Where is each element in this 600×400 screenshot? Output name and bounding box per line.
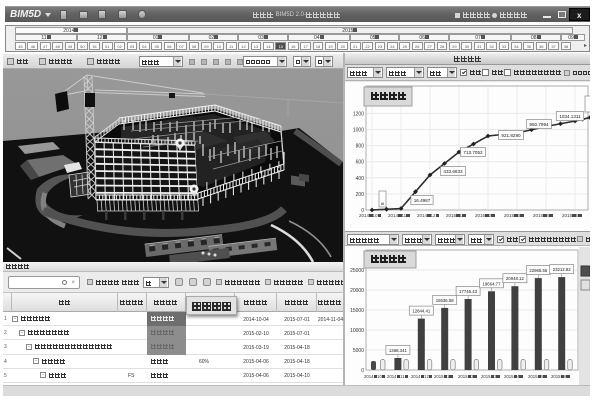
svg-text:15536.58: 15536.58 <box>436 298 455 303</box>
svg-text:950.7994: 950.7994 <box>529 122 549 127</box>
svg-text:1000: 1000 <box>353 128 364 134</box>
svg-text:23212.82: 23212.82 <box>553 267 572 272</box>
svg-text:200: 200 <box>356 192 365 198</box>
svg-text:10000: 10000 <box>350 328 364 334</box>
svg-text:19664.77: 19664.77 <box>483 281 502 286</box>
svg-text:600: 600 <box>356 160 365 166</box>
svg-text:8: 8 <box>380 202 385 205</box>
svg-text:5000: 5000 <box>353 348 364 354</box>
svg-text:921.8290: 921.8290 <box>501 133 521 138</box>
svg-text:20948.12: 20948.12 <box>506 276 525 281</box>
svg-text:20000: 20000 <box>350 288 364 294</box>
svg-text:17746.43: 17746.43 <box>459 289 478 294</box>
svg-text:1200: 1200 <box>353 111 364 117</box>
svg-text:1034.1311: 1034.1311 <box>559 114 581 119</box>
svg-text:25000: 25000 <box>350 268 364 274</box>
svg-text:713.7052: 713.7052 <box>463 150 483 155</box>
svg-text:22965.56: 22965.56 <box>529 268 548 273</box>
svg-text:1368.341: 1368.341 <box>389 348 408 353</box>
svg-text:12844.41: 12844.41 <box>412 309 431 314</box>
svg-text:16.4987: 16.4987 <box>414 198 431 203</box>
svg-text:15000: 15000 <box>350 308 364 314</box>
svg-text:800: 800 <box>356 144 365 150</box>
svg-text:433.6633: 433.6633 <box>443 169 463 174</box>
svg-text:400: 400 <box>356 176 365 182</box>
